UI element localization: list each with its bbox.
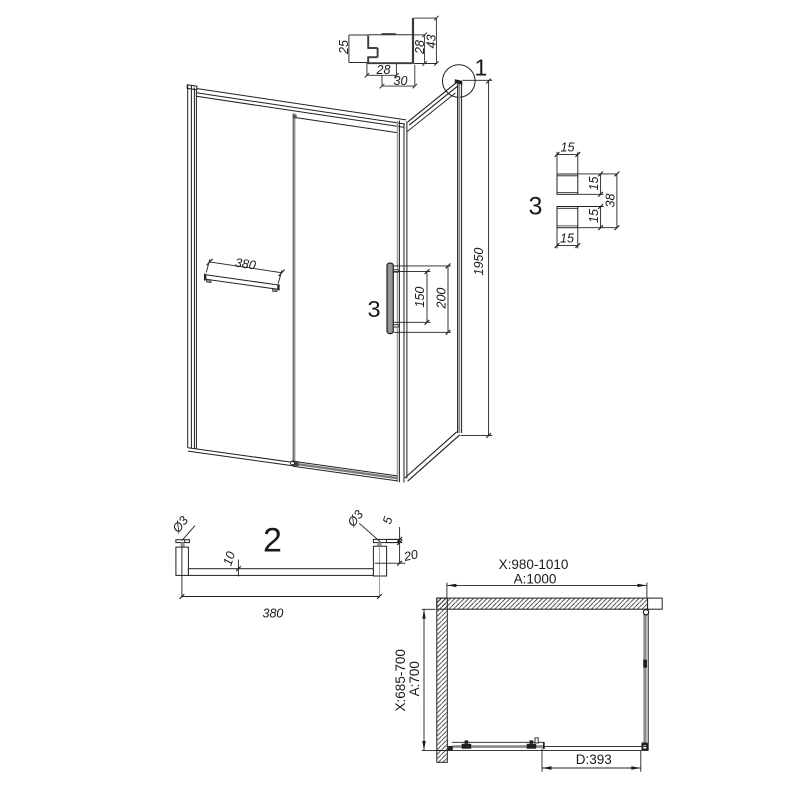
svg-text:2: 2: [263, 522, 282, 560]
svg-text:15: 15: [587, 177, 601, 191]
svg-text:38: 38: [604, 194, 618, 208]
svg-text:X:980-1010: X:980-1010: [499, 557, 569, 572]
svg-text:3: 3: [368, 296, 381, 322]
svg-text:28: 28: [376, 63, 391, 77]
svg-text:X:685-700: X:685-700: [393, 649, 408, 711]
svg-text:10: 10: [221, 550, 239, 568]
svg-text:1950: 1950: [472, 248, 486, 276]
svg-text:43: 43: [425, 35, 439, 49]
svg-text:380: 380: [263, 607, 284, 621]
svg-text:A:1000: A:1000: [514, 572, 557, 587]
svg-text:15: 15: [587, 209, 601, 223]
svg-text:15: 15: [560, 232, 574, 246]
svg-text:3: 3: [529, 193, 543, 221]
svg-text:20: 20: [402, 547, 420, 564]
svg-text:Ø3: Ø3: [169, 514, 191, 537]
svg-text:30: 30: [394, 74, 408, 88]
svg-text:D:393: D:393: [576, 752, 612, 767]
svg-text:A:700: A:700: [407, 661, 422, 696]
svg-text:5: 5: [380, 515, 395, 526]
svg-text:150: 150: [413, 287, 427, 308]
svg-text:1: 1: [475, 55, 488, 81]
svg-text:380: 380: [234, 256, 257, 273]
svg-text:15: 15: [561, 141, 575, 155]
svg-text:25: 25: [337, 40, 351, 55]
svg-text:200: 200: [434, 288, 448, 310]
